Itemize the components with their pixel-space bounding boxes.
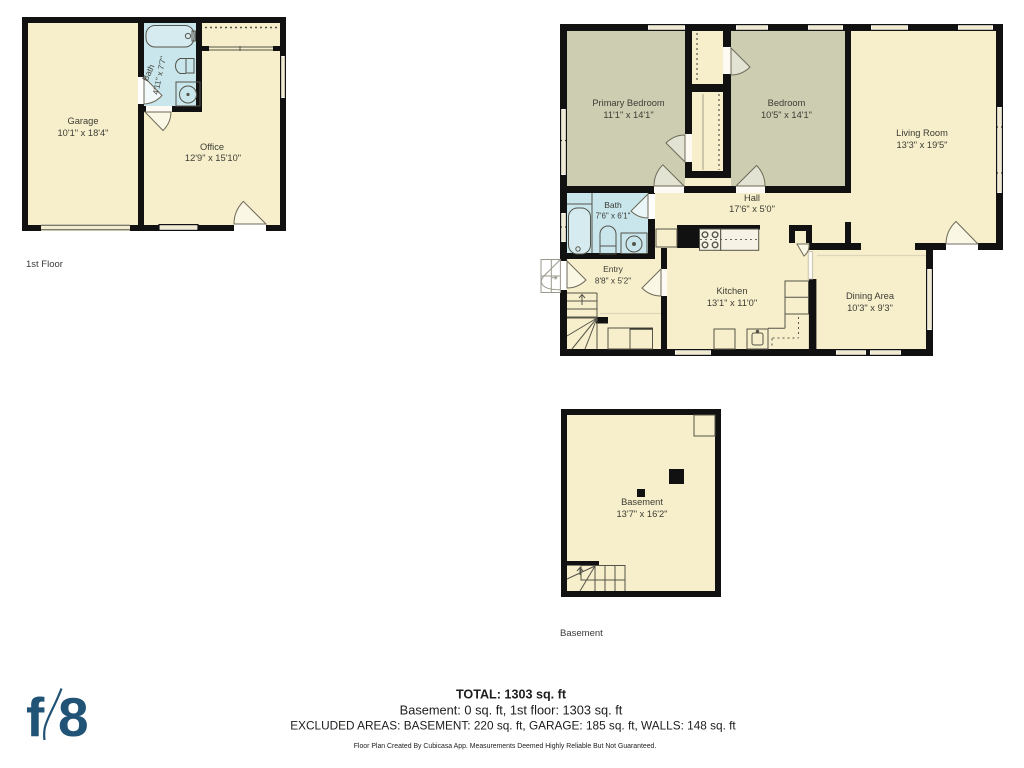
svg-text:Office: Office [200, 142, 224, 152]
svg-text:Primary Bedroom: Primary Bedroom [592, 98, 665, 108]
svg-text:Basement: Basement [621, 497, 663, 507]
svg-text:Bath: Bath [604, 200, 622, 210]
svg-text:13'7" x 16'2": 13'7" x 16'2" [617, 509, 668, 519]
svg-text:13'3" x 19'5": 13'3" x 19'5" [897, 140, 948, 150]
svg-text:Garage: Garage [67, 116, 98, 126]
svg-text:Floor Plan Created By Cubicasa: Floor Plan Created By Cubicasa App. Meas… [354, 743, 657, 750]
svg-text:Basement: Basement [560, 628, 603, 639]
svg-text:8: 8 [58, 686, 89, 748]
svg-text:TOTAL: 1303 sq. ft: TOTAL: 1303 sq. ft [456, 688, 567, 702]
svg-text:10'3" x 9'3": 10'3" x 9'3" [847, 303, 893, 313]
svg-text:8'8" x 5'2": 8'8" x 5'2" [595, 276, 631, 286]
svg-text:13'1" x 11'0": 13'1" x 11'0" [707, 298, 757, 308]
svg-text:10'5" x 14'1": 10'5" x 14'1" [761, 110, 812, 120]
svg-text:7'6" x 6'1": 7'6" x 6'1" [596, 212, 631, 221]
svg-text:EXCLUDED AREAS: BASEMENT: 220: EXCLUDED AREAS: BASEMENT: 220 sq. ft, GA… [290, 719, 736, 733]
svg-text:10'1" x 18'4": 10'1" x 18'4" [58, 128, 109, 138]
svg-text:11'1" x 14'1": 11'1" x 14'1" [603, 110, 653, 120]
svg-text:Bedroom: Bedroom [768, 98, 806, 108]
svg-text:Entry: Entry [603, 264, 624, 274]
svg-text:Dining Area: Dining Area [846, 291, 895, 301]
svg-text:Kitchen: Kitchen [716, 286, 747, 296]
svg-text:17'6" x 5'0": 17'6" x 5'0" [729, 204, 775, 214]
svg-text:Living Room: Living Room [896, 128, 948, 138]
svg-text:12'9" x 15'10": 12'9" x 15'10" [185, 153, 241, 163]
svg-text:Hall: Hall [744, 193, 760, 203]
svg-text:Basement: 0 sq. ft, 1st floor:: Basement: 0 sq. ft, 1st floor: 1303 sq. … [400, 703, 623, 718]
svg-text:1st Floor: 1st Floor [26, 259, 63, 270]
svg-text:f: f [26, 686, 45, 748]
